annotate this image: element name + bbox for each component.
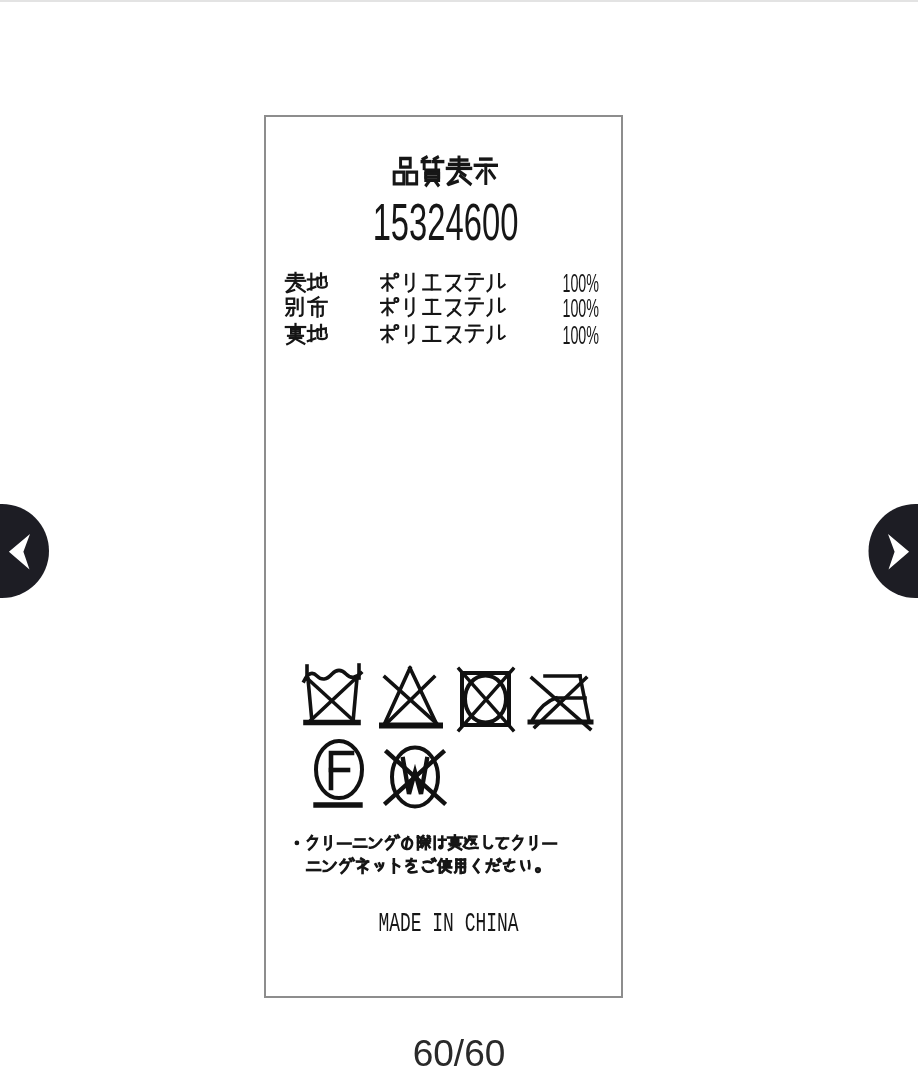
svg-text:MADE IN CHINA: MADE IN CHINA: [379, 909, 519, 940]
svg-text:15324600: 15324600: [373, 193, 519, 250]
svg-text:100%: 100%: [562, 320, 599, 349]
svg-text:100%: 100%: [562, 293, 599, 322]
